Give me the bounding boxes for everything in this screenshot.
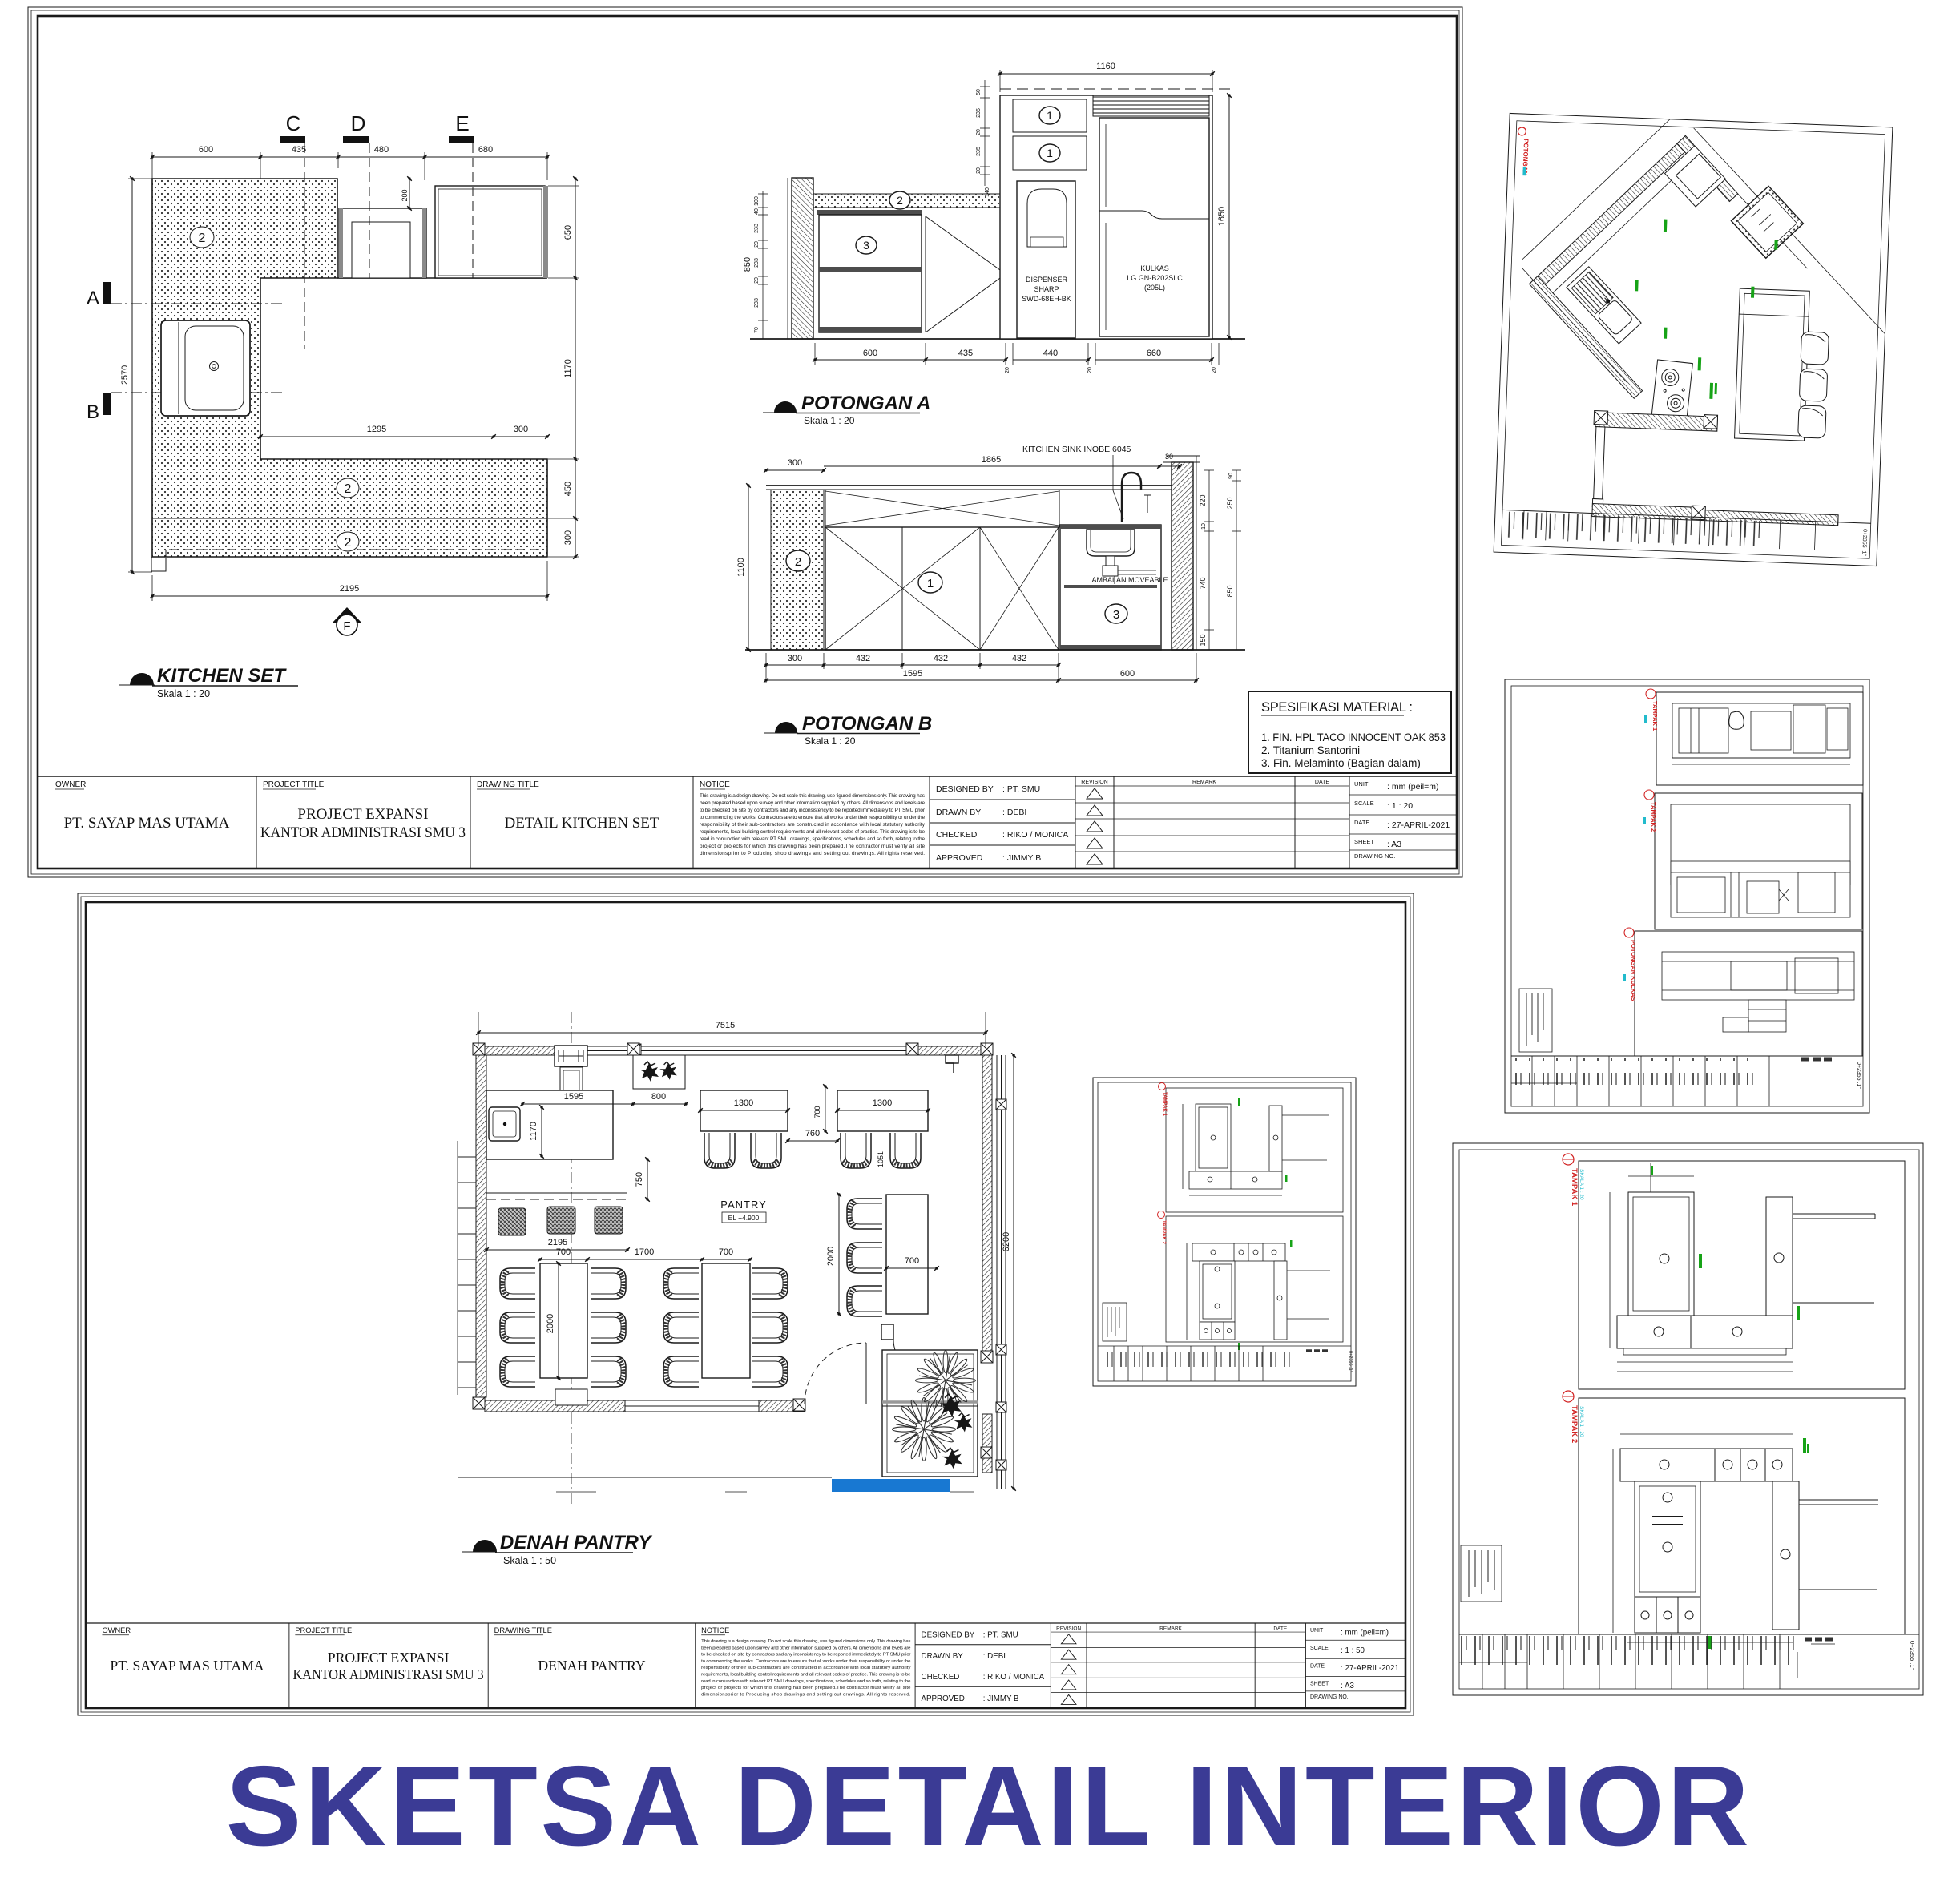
svg-text:2000: 2000 — [546, 1314, 555, 1333]
svg-text:1700: 1700 — [635, 1247, 654, 1257]
svg-text:440: 440 — [1043, 349, 1058, 358]
svg-text:300: 300 — [788, 458, 802, 468]
svg-text:1: 1 — [1047, 147, 1053, 159]
svg-text:432: 432 — [934, 654, 948, 663]
svg-text:480: 480 — [374, 145, 389, 155]
svg-text:TAMPAK 1: TAMPAK 1 — [1162, 1092, 1167, 1116]
svg-text:PT. SAYAP MAS UTAMA: PT. SAYAP MAS UTAMA — [110, 1658, 264, 1674]
svg-text:: 27-APRIL-2021: : 27-APRIL-2021 — [1341, 1664, 1399, 1673]
svg-text:10: 10 — [1201, 523, 1207, 530]
svg-text:300: 300 — [788, 654, 802, 663]
svg-text:TAMPAK 1: TAMPAK 1 — [1570, 1168, 1579, 1207]
svg-text:DESIGNED BY: DESIGNED BY — [922, 1631, 975, 1640]
svg-text:3: 3 — [863, 239, 869, 252]
svg-text:DRAWN BY: DRAWN BY — [922, 1652, 964, 1661]
svg-text:1160: 1160 — [1096, 62, 1115, 71]
svg-text:SPESIFIKASI MATERIAL :: SPESIFIKASI MATERIAL : — [1261, 700, 1413, 715]
svg-text:300: 300 — [514, 425, 528, 434]
svg-text:read in conjunction with relev: read in conjunction with relevant PT SMU… — [701, 1679, 911, 1684]
svg-text:dimensionsprior to Producing s: dimensionsprior to Producing shop drawin… — [700, 851, 925, 856]
svg-text:435: 435 — [292, 145, 306, 155]
svg-text:APPROVED: APPROVED — [936, 853, 983, 863]
svg-text:432: 432 — [1012, 654, 1026, 663]
svg-text:APPROVED: APPROVED — [922, 1694, 965, 1703]
svg-text:: JIMMY B: : JIMMY B — [1002, 853, 1041, 863]
svg-text:40: 40 — [754, 208, 760, 215]
svg-text:TAMPAK 2: TAMPAK 2 — [1161, 1220, 1166, 1244]
svg-text:: A3: : A3 — [1341, 1682, 1354, 1690]
svg-text:2: 2 — [345, 482, 352, 496]
svg-text:(205L): (205L) — [1144, 284, 1165, 292]
svg-text:F: F — [343, 619, 350, 633]
svg-text:: DEBI: : DEBI — [983, 1652, 1006, 1661]
svg-text:220: 220 — [1199, 494, 1207, 506]
svg-text:0+2355 ,1°: 0+2355 ,1° — [1348, 1351, 1353, 1372]
svg-text:: 27-APRIL-2021: : 27-APRIL-2021 — [1387, 820, 1450, 830]
svg-text:70: 70 — [754, 327, 760, 333]
svg-text:read in conjunction with relev: read in conjunction with relevant PT SMU… — [700, 836, 925, 842]
svg-text:SKALA 1 : 20: SKALA 1 : 20 — [1579, 1169, 1584, 1200]
svg-text:1100: 1100 — [736, 558, 746, 577]
svg-text:PROJECT EXPANSI: PROJECT EXPANSI — [328, 1650, 450, 1666]
svg-text:1170: 1170 — [563, 359, 573, 378]
svg-text:been prepared based upon surve: been prepared based upon survey and othe… — [700, 800, 925, 806]
svg-text:DENAH PANTRY: DENAH PANTRY — [538, 1658, 646, 1674]
svg-text:Skala 1 : 20: Skala 1 : 20 — [157, 688, 210, 699]
svg-text:0+2355 ,1°: 0+2355 ,1° — [1856, 1062, 1862, 1089]
svg-text:E: E — [455, 111, 469, 135]
svg-text:DRAWING TITLE: DRAWING TITLE — [477, 780, 539, 789]
svg-text:SKETSA DETAIL INTERIOR: SKETSA DETAIL INTERIOR — [226, 1743, 1752, 1870]
svg-text:SKALA 1 : 20: SKALA 1 : 20 — [1579, 1406, 1584, 1437]
svg-text:: mm (peil=m): : mm (peil=m) — [1341, 1629, 1389, 1638]
svg-text:DATE: DATE — [1354, 819, 1369, 826]
svg-text:OWNER: OWNER — [102, 1626, 131, 1634]
svg-text:90: 90 — [1228, 473, 1234, 479]
svg-text:DATE: DATE — [1273, 1626, 1288, 1631]
svg-text:EL +4.900: EL +4.900 — [728, 1214, 760, 1222]
svg-text:UNIT: UNIT — [1310, 1628, 1324, 1634]
svg-text:0+2355 ,1°: 0+2355 ,1° — [1861, 529, 1868, 557]
svg-text:150: 150 — [1199, 634, 1207, 646]
svg-text:2: 2 — [199, 232, 206, 245]
svg-text:dimensionsprior to Producing s: dimensionsprior to Producing shop drawin… — [701, 1692, 911, 1697]
svg-text:50: 50 — [976, 89, 982, 95]
svg-text:DISPENSER: DISPENSER — [1026, 276, 1068, 284]
svg-text:project or projects for which: project or projects for which this drawi… — [700, 844, 925, 849]
svg-text:1. FIN. HPL TACO INNOCENT OAK: 1. FIN. HPL TACO INNOCENT OAK 853 — [1261, 731, 1446, 743]
svg-text:233: 233 — [754, 298, 760, 308]
svg-text:SHEET: SHEET — [1354, 838, 1374, 845]
svg-text:SHEET: SHEET — [1310, 1681, 1329, 1686]
svg-text:2. Titanium Santorini: 2. Titanium Santorini — [1261, 744, 1360, 756]
svg-text:This drawing is a design drawi: This drawing is a design drawing. Do not… — [701, 1639, 910, 1644]
svg-text:1300: 1300 — [734, 1098, 753, 1108]
svg-text:to commencing the works. Contr: to commencing the works. Contractors are… — [700, 815, 925, 820]
svg-text:200: 200 — [401, 189, 409, 201]
svg-text:250: 250 — [1226, 497, 1234, 509]
svg-text:20: 20 — [1212, 367, 1217, 373]
svg-text:: A3: : A3 — [1387, 840, 1401, 849]
svg-text:B: B — [87, 401, 99, 423]
svg-text:700: 700 — [556, 1247, 571, 1257]
svg-text:UNIT: UNIT — [1354, 780, 1369, 788]
svg-text:700: 700 — [813, 1106, 821, 1118]
svg-text:300: 300 — [563, 530, 573, 545]
svg-text:SHARP: SHARP — [1034, 285, 1059, 293]
svg-text:POTONGAN B: POTONGAN B — [802, 713, 932, 735]
svg-text:: RIKO / MONICA: : RIKO / MONICA — [1002, 830, 1068, 840]
svg-text:0+2355 ,1°: 0+2355 ,1° — [1909, 1641, 1916, 1670]
svg-text:Skala 1 : 20: Skala 1 : 20 — [805, 735, 856, 747]
svg-text:: PT. SMU: : PT. SMU — [983, 1631, 1018, 1640]
svg-text:responsibility of their sub-co: responsibility of their sub-contractors … — [700, 822, 926, 828]
svg-text:LG GN-B202SLC: LG GN-B202SLC — [1127, 274, 1183, 282]
svg-text:20: 20 — [754, 241, 760, 248]
svg-text:DETAIL KITCHEN SET: DETAIL KITCHEN SET — [504, 815, 659, 832]
svg-text:REMARK: REMARK — [1192, 780, 1216, 785]
svg-text:DRAWING NO.: DRAWING NO. — [1354, 852, 1395, 860]
svg-text:1595: 1595 — [903, 669, 922, 679]
svg-text:450: 450 — [563, 482, 573, 496]
svg-text:20: 20 — [976, 129, 982, 135]
svg-text:2: 2 — [795, 555, 801, 569]
svg-text:: mm (peil=m): : mm (peil=m) — [1387, 782, 1438, 792]
svg-text:6200: 6200 — [1002, 1232, 1011, 1251]
svg-text:: 1 : 50: : 1 : 50 — [1341, 1646, 1365, 1655]
svg-text:700: 700 — [905, 1256, 919, 1266]
svg-text:100: 100 — [754, 196, 760, 206]
svg-text:1595: 1595 — [564, 1092, 583, 1102]
svg-text:140: 140 — [985, 187, 990, 197]
svg-text:TAMPAK 1: TAMPAK 1 — [1651, 701, 1659, 731]
svg-text:750: 750 — [635, 1172, 644, 1187]
svg-text:REVISION: REVISION — [1081, 780, 1107, 785]
svg-text:Skala 1 : 50: Skala 1 : 50 — [503, 1555, 556, 1566]
svg-text:TAMPAK 2: TAMPAK 2 — [1570, 1405, 1579, 1443]
svg-text:PANTRY: PANTRY — [720, 1199, 767, 1211]
svg-text:PROJECT EXPANSI: PROJECT EXPANSI — [297, 806, 428, 823]
svg-text:2570: 2570 — [120, 365, 130, 385]
svg-text:AMBALAN MOVEABLE: AMBALAN MOVEABLE — [1091, 576, 1168, 584]
svg-text:POTONGAN A: POTONGAN A — [801, 393, 930, 414]
svg-text:600: 600 — [863, 349, 877, 358]
svg-text:1650: 1650 — [1217, 207, 1227, 226]
svg-text:KANTOR ADMINISTRASI SMU 3: KANTOR ADMINISTRASI SMU 3 — [260, 824, 466, 841]
svg-text:2195: 2195 — [340, 584, 359, 594]
svg-text:REVISION: REVISION — [1056, 1626, 1081, 1631]
svg-text:PROJECT TITLE: PROJECT TITLE — [263, 780, 325, 789]
svg-text:DRAWING NO.: DRAWING NO. — [1310, 1694, 1349, 1700]
svg-text:235: 235 — [976, 108, 982, 118]
svg-text:850: 850 — [1226, 585, 1234, 597]
svg-text:to commencing the works. Contr: to commencing the works. Contractors are… — [701, 1659, 911, 1664]
svg-text:1: 1 — [927, 577, 934, 590]
svg-text:435: 435 — [958, 349, 973, 358]
svg-text:CHECKED: CHECKED — [922, 1673, 960, 1682]
svg-text:235: 235 — [976, 147, 982, 156]
svg-text:SCALE: SCALE — [1310, 1646, 1329, 1651]
svg-text:660: 660 — [1147, 349, 1161, 358]
svg-text:600: 600 — [199, 145, 213, 155]
svg-text:Skala 1 : 20: Skala 1 : 20 — [804, 415, 855, 426]
svg-text:7515: 7515 — [716, 1021, 735, 1030]
svg-text:CHECKED: CHECKED — [936, 830, 978, 840]
svg-text:600: 600 — [1120, 669, 1135, 679]
svg-text:D: D — [351, 111, 366, 135]
svg-text:700: 700 — [719, 1247, 733, 1257]
svg-text:1170: 1170 — [529, 1122, 538, 1141]
svg-text:740: 740 — [1199, 577, 1207, 589]
svg-text:2195: 2195 — [548, 1238, 567, 1247]
svg-text:NOTICE: NOTICE — [701, 1626, 729, 1634]
svg-text:2: 2 — [897, 194, 903, 207]
svg-text:: RIKO / MONICA: : RIKO / MONICA — [983, 1673, 1045, 1682]
svg-text:800: 800 — [651, 1092, 666, 1102]
svg-text:requirements, local building c: requirements, local building control req… — [701, 1672, 911, 1677]
svg-text:This drawing is a design drawi: This drawing is a design drawing. Do not… — [700, 793, 925, 799]
svg-text:KANTOR ADMINISTRASI SMU 3: KANTOR ADMINISTRASI SMU 3 — [293, 1666, 484, 1682]
svg-text:1300: 1300 — [873, 1098, 892, 1108]
svg-text:OWNER: OWNER — [55, 780, 86, 789]
svg-text:C: C — [286, 111, 301, 135]
svg-text:PROJECT TITLE: PROJECT TITLE — [295, 1626, 352, 1634]
svg-text:2: 2 — [345, 536, 352, 550]
svg-text:: DEBI: : DEBI — [1002, 808, 1026, 817]
svg-text:20: 20 — [976, 167, 982, 174]
svg-text:KITCHEN SINK INOBE 6045: KITCHEN SINK INOBE 6045 — [1022, 445, 1131, 454]
svg-text:2000: 2000 — [826, 1247, 836, 1266]
svg-text:680: 680 — [478, 145, 493, 155]
svg-text:requirements, local building c: requirements, local building control req… — [700, 829, 925, 835]
svg-text:1: 1 — [1047, 109, 1053, 122]
svg-text:DRAWN BY: DRAWN BY — [936, 808, 981, 817]
svg-text:to be checked on site by contr: to be checked on site by contractors and… — [701, 1653, 910, 1658]
svg-text:DATE: DATE — [1315, 780, 1329, 785]
svg-text:20: 20 — [754, 277, 760, 284]
svg-text:A: A — [87, 288, 99, 309]
svg-text:KITCHEN SET: KITCHEN SET — [157, 665, 287, 687]
svg-text:850: 850 — [743, 257, 752, 272]
svg-text:KULKAS: KULKAS — [1140, 264, 1169, 272]
svg-text:760: 760 — [805, 1129, 820, 1138]
svg-text:PT. SAYAP MAS UTAMA: PT. SAYAP MAS UTAMA — [64, 815, 230, 832]
svg-text:SCALE: SCALE — [1354, 800, 1374, 807]
svg-text:DENAH PANTRY: DENAH PANTRY — [500, 1532, 652, 1553]
svg-text:POTONGAN KULKAS: POTONGAN KULKAS — [1630, 940, 1637, 1001]
svg-text:20: 20 — [1087, 367, 1093, 373]
svg-text:30: 30 — [1165, 453, 1173, 461]
svg-text:project or projects for which: project or projects for which this drawi… — [701, 1686, 911, 1690]
svg-text:3: 3 — [1113, 608, 1119, 622]
svg-text:TAMPAK 2: TAMPAK 2 — [1650, 802, 1657, 832]
svg-text:: JIMMY B: : JIMMY B — [983, 1694, 1019, 1703]
svg-text:1051: 1051 — [877, 1151, 885, 1167]
svg-text:3. Fin. Melaminto (Bagian dala: 3. Fin. Melaminto (Bagian dalam) — [1261, 757, 1421, 769]
svg-text:233: 233 — [754, 224, 760, 233]
svg-text:NOTICE: NOTICE — [700, 780, 730, 789]
svg-text:DRAWING TITLE: DRAWING TITLE — [494, 1626, 552, 1634]
svg-text:DESIGNED BY: DESIGNED BY — [936, 784, 994, 794]
svg-text:: PT. SMU: : PT. SMU — [1002, 784, 1040, 794]
svg-text:650: 650 — [563, 225, 573, 240]
svg-text:responsibility of their sub-co: responsibility of their sub-contractors … — [701, 1666, 910, 1670]
svg-text:been prepared based upon surve: been prepared based upon survey and othe… — [701, 1646, 911, 1650]
svg-text:233: 233 — [754, 258, 760, 268]
svg-text:REMARK: REMARK — [1159, 1626, 1182, 1631]
svg-text:1865: 1865 — [982, 455, 1001, 465]
svg-text:: 1 : 20: : 1 : 20 — [1387, 801, 1413, 811]
svg-text:DATE: DATE — [1310, 1663, 1325, 1669]
svg-text:20: 20 — [1005, 367, 1010, 373]
svg-text:1295: 1295 — [367, 425, 386, 434]
svg-text:432: 432 — [856, 654, 870, 663]
svg-text:SWD-68EH-BK: SWD-68EH-BK — [1022, 295, 1071, 303]
svg-text:to be checked on site by contr: to be checked on site by contractors and… — [700, 808, 926, 813]
